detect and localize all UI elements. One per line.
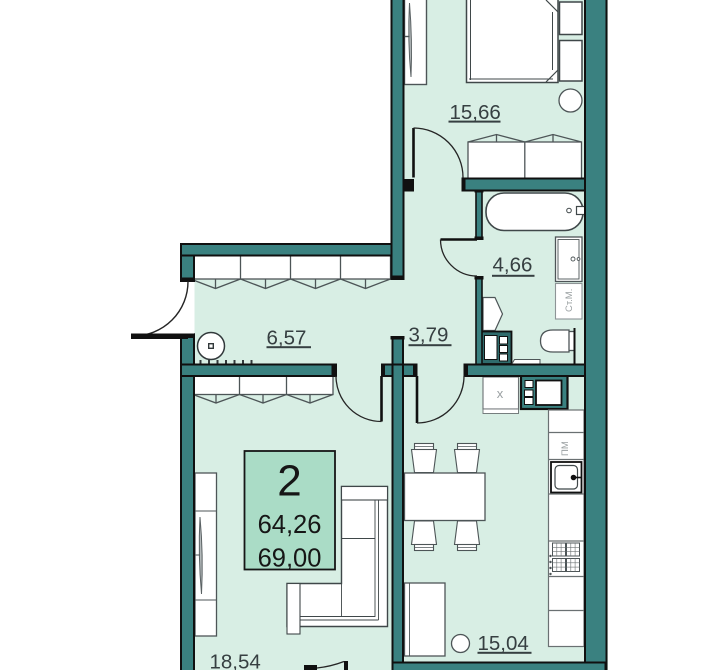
svg-text:3,79: 3,79 bbox=[409, 324, 449, 347]
svg-text:Ст.М.: Ст.М. bbox=[564, 289, 575, 312]
svg-text:6,57: 6,57 bbox=[267, 327, 307, 350]
svg-text:ПМ: ПМ bbox=[560, 441, 571, 456]
svg-text:15,66: 15,66 bbox=[450, 101, 501, 124]
svg-text:4,66: 4,66 bbox=[493, 253, 533, 276]
svg-text:x: x bbox=[497, 386, 504, 401]
svg-text:18,54: 18,54 bbox=[210, 651, 261, 670]
svg-text:15,04: 15,04 bbox=[478, 632, 529, 655]
svg-text:64,26: 64,26 bbox=[258, 511, 322, 539]
svg-text:2: 2 bbox=[277, 457, 301, 506]
svg-text:69,00: 69,00 bbox=[258, 545, 322, 573]
